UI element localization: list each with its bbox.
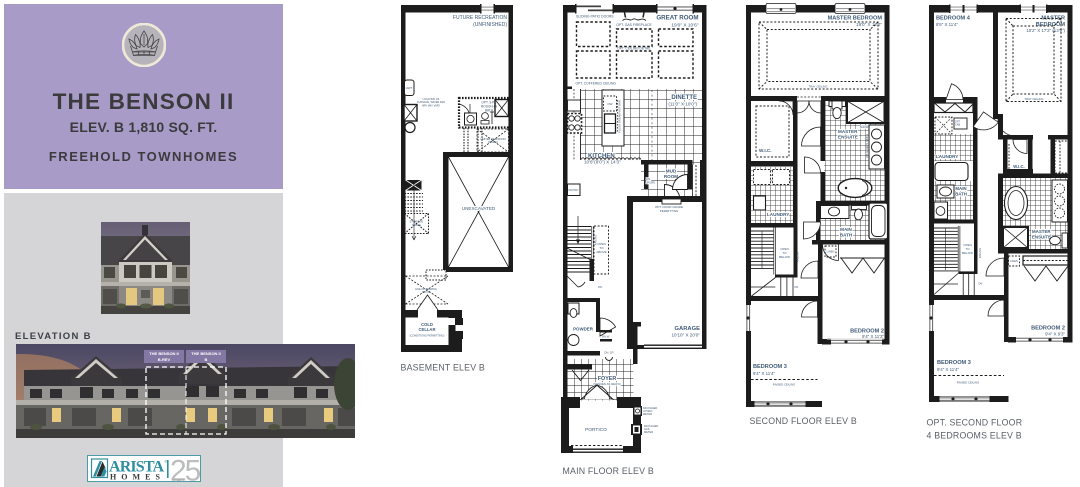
svg-text:LAUNDRY: LAUNDRY: [767, 212, 789, 217]
svg-text:BELOW: BELOW: [962, 251, 973, 255]
svg-text:LAUNDRY: LAUNDRY: [936, 154, 958, 159]
svg-text:9'4" X 11'4": 9'4" X 11'4": [937, 367, 959, 372]
svg-text:LINEN: LINEN: [1010, 259, 1018, 263]
svg-text:BATH: BATH: [485, 109, 494, 113]
svg-text:MAIN: MAIN: [840, 227, 852, 232]
svg-text:(11'0" X 10'0"): (11'0" X 10'0"): [668, 102, 697, 107]
svg-text:CELLAR: CELLAR: [419, 327, 436, 332]
svg-text:TRAY CEILING: TRAY CEILING: [1024, 97, 1043, 101]
svg-text:10'6"(8'0") X 14'3": 10'6"(8'0") X 14'3": [584, 160, 621, 165]
svg-text:HRV MAY VARY: HRV MAY VARY: [422, 104, 441, 107]
svg-text:MAIN FLOOR ELEV B: MAIN FLOOR ELEV B: [563, 466, 654, 476]
svg-text:MASTER BEDROOM: MASTER BEDROOM: [828, 16, 883, 22]
svg-text:SECOND FLOOR ELEV B: SECOND FLOOR ELEV B: [750, 416, 857, 426]
svg-text:ENSUITE: ENSUITE: [1032, 235, 1051, 240]
svg-text:DN.: DN.: [598, 285, 603, 289]
svg-text:9'4" X 11'4": 9'4" X 11'4": [753, 371, 775, 376]
svg-text:BEDROOM 3: BEDROOM 3: [937, 360, 971, 366]
svg-text:9'4" X 9'3": 9'4" X 9'3": [1045, 332, 1065, 337]
svg-text:10'10" X 20'0": 10'10" X 20'0": [671, 333, 700, 338]
svg-text:(CONDITIONS PERMITTING): (CONDITIONS PERMITTING): [410, 334, 445, 338]
svg-text:IN AREA: IN AREA: [488, 141, 498, 144]
svg-text:FLUSH BREAKFAST BAR: FLUSH BREAKFAST BAR: [618, 100, 622, 133]
svg-text:BATH: BATH: [840, 233, 853, 238]
svg-text:GARAGE: GARAGE: [675, 326, 701, 332]
svg-text:OPT. COFFERED CEILING: OPT. COFFERED CEILING: [576, 82, 617, 86]
svg-text:DN: DN: [979, 282, 983, 286]
svg-text:RAISED CEILING: RAISED CEILING: [773, 383, 795, 387]
svg-text:OPT. GAS FIREPLACE: OPT. GAS FIREPLACE: [616, 23, 652, 27]
svg-text:METER: METER: [644, 430, 653, 434]
svg-text:PORTICO: PORTICO: [585, 427, 607, 433]
svg-text:BEDROOM 3: BEDROOM 3: [753, 364, 787, 370]
svg-text:DN: DN: [795, 285, 799, 289]
svg-text:2R(3R): 2R(3R): [646, 181, 655, 185]
svg-text:ROOM: ROOM: [664, 174, 678, 179]
svg-text:MASTER: MASTER: [1032, 229, 1051, 234]
svg-text:9'4" X 11'3": 9'4" X 11'3": [862, 334, 884, 339]
svg-text:RAILING: RAILING: [594, 235, 598, 245]
svg-text:BATH: BATH: [955, 192, 967, 197]
svg-text:HWT: HWT: [406, 86, 413, 90]
svg-text:SPACE: SPACE: [412, 223, 421, 227]
svg-text:BASEMENT ELEV B: BASEMENT ELEV B: [401, 362, 485, 372]
svg-text:PERMITTING: PERMITTING: [660, 209, 679, 213]
svg-text:8'6" X 11'4": 8'6" X 11'4": [936, 22, 958, 27]
svg-text:PANTRY: PANTRY: [568, 188, 579, 192]
svg-text:RAILING: RAILING: [796, 252, 800, 262]
svg-text:W.I.C.: W.I.C.: [759, 148, 772, 153]
svg-text:CAB.: CAB.: [955, 124, 961, 127]
svg-text:GREAT ROOM: GREAT ROOM: [656, 15, 698, 22]
svg-text:SLIDING PATIO DOORS: SLIDING PATIO DOORS: [576, 15, 614, 19]
svg-text:10'2" X 17'2" (13'9"): 10'2" X 17'2" (13'9"): [1026, 28, 1065, 33]
svg-text:W.I.C.: W.I.C.: [1013, 164, 1024, 169]
svg-text:ABOVE: ABOVE: [596, 250, 606, 254]
svg-text:BEDROOM 4: BEDROOM 4: [936, 16, 971, 22]
svg-text:BELOW: BELOW: [779, 255, 790, 259]
svg-text:RAILING: RAILING: [978, 248, 982, 258]
svg-text:UNEXCAVATED: UNEXCAVATED: [462, 206, 496, 211]
svg-text:DW: DW: [608, 102, 613, 106]
svg-text:19'0" X 10'6": 19'0" X 10'6": [671, 23, 698, 29]
svg-text:DN. 1R: DN. 1R: [604, 351, 613, 355]
svg-text:DN.W.: DN.W.: [602, 335, 610, 339]
svg-text:MASTER: MASTER: [838, 129, 858, 134]
svg-text:POWDER: POWDER: [573, 327, 594, 332]
svg-text:LINEN: LINEN: [827, 250, 835, 254]
svg-text:4 BEDROOMS ELEV B: 4 BEDROOMS ELEV B: [927, 431, 1022, 441]
svg-text:FUTURE RECREATION: FUTURE RECREATION: [453, 15, 507, 21]
svg-text:MAIN: MAIN: [955, 186, 966, 191]
svg-text:MUD: MUD: [666, 169, 677, 174]
svg-text:ABOVE: ABOVE: [422, 291, 431, 294]
svg-text:OPT. SECOND FLOOR: OPT. SECOND FLOOR: [927, 418, 1023, 428]
svg-text:METER: METER: [643, 412, 652, 416]
svg-text:RAISED CEILING: RAISED CEILING: [957, 381, 979, 385]
svg-text:ENSUITE: ENSUITE: [838, 135, 858, 140]
svg-text:(UNFINISHED): (UNFINISHED): [473, 22, 507, 28]
svg-text:HIS & HERS SINKS: HIS & HERS SINKS: [865, 134, 869, 158]
svg-text:DINETTE: DINETTE: [671, 95, 697, 101]
svg-text:TRAY CEILING: TRAY CEILING: [808, 85, 827, 89]
svg-text:OPT. CEILING DETAIL: OPT. CEILING DETAIL: [617, 47, 651, 51]
